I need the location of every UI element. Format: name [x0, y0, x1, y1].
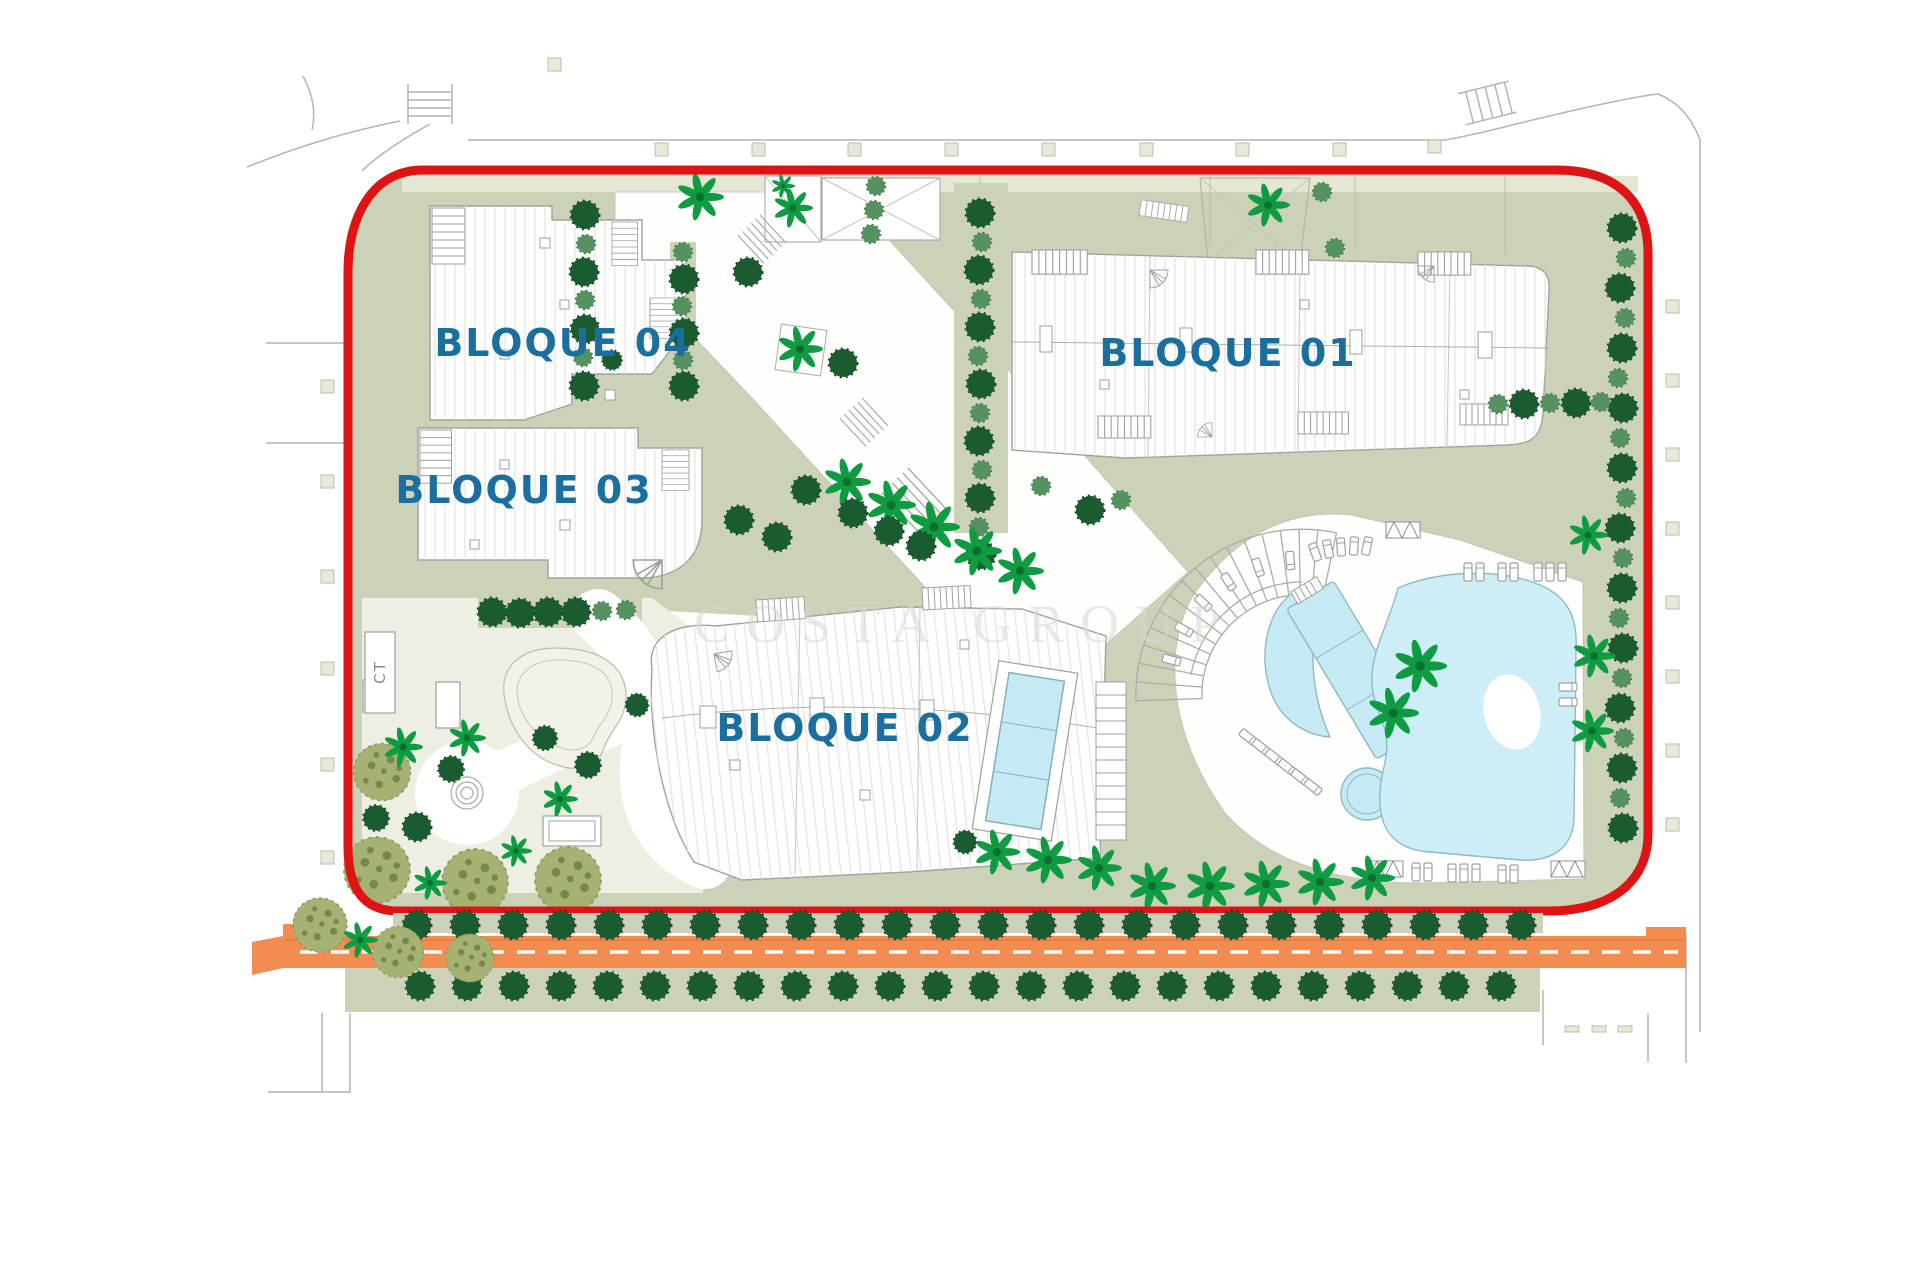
bloque-01-label: BLOQUE 01	[1099, 331, 1356, 375]
site-plan-page: CT	[0, 0, 1920, 1280]
fountain	[451, 777, 483, 809]
watermark: COSTA GROUP	[694, 594, 1236, 654]
bloque-03-label: BLOQUE 03	[395, 468, 652, 512]
ct-label: CT	[371, 660, 389, 684]
crosswalk-top-left	[408, 84, 452, 124]
site-plan-drawing: CT	[0, 0, 1920, 1280]
parcel-top-verge	[402, 176, 1638, 192]
ct-box: CT	[365, 632, 395, 713]
ramp-stairs	[1096, 682, 1126, 840]
bloque-02-label: BLOQUE 02	[716, 706, 973, 750]
crosswalk-top-right	[1458, 81, 1516, 125]
bloque-04-label: BLOQUE 04	[434, 321, 691, 365]
